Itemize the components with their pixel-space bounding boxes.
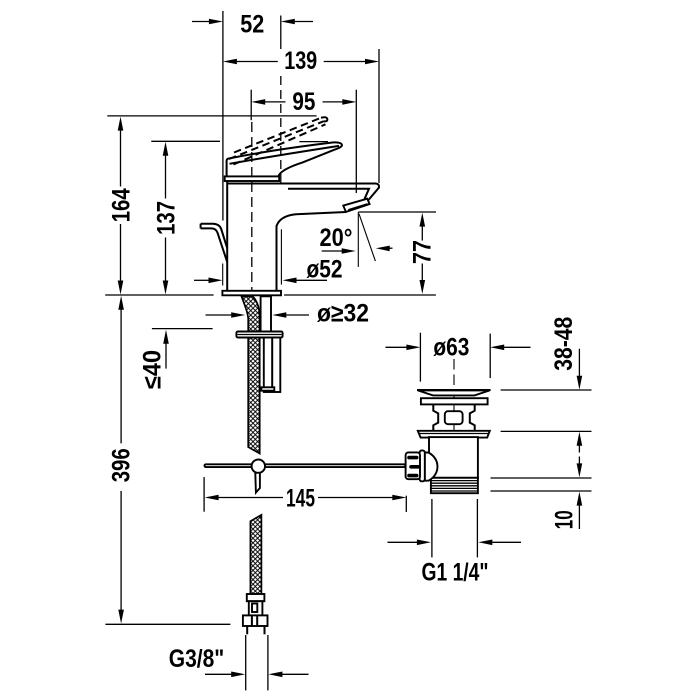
svg-text:ø63: ø63: [433, 334, 469, 362]
svg-text:G1 1/4": G1 1/4": [422, 559, 489, 587]
svg-text:164: 164: [107, 188, 135, 222]
svg-text:G3/8": G3/8": [169, 645, 225, 673]
svg-text:20°: 20°: [320, 224, 353, 252]
svg-text:52: 52: [240, 11, 264, 39]
svg-text:145: 145: [286, 485, 315, 513]
svg-text:77: 77: [409, 240, 437, 264]
svg-text:38-48: 38-48: [550, 317, 578, 371]
svg-text:ø52: ø52: [307, 256, 343, 284]
svg-text:139: 139: [284, 47, 317, 75]
svg-text:396: 396: [108, 448, 136, 482]
svg-text:ø≥32: ø≥32: [317, 300, 369, 328]
svg-text:10: 10: [550, 510, 578, 529]
svg-text:95: 95: [292, 88, 315, 116]
svg-text:137: 137: [152, 201, 180, 235]
svg-text:≤40: ≤40: [138, 350, 166, 389]
